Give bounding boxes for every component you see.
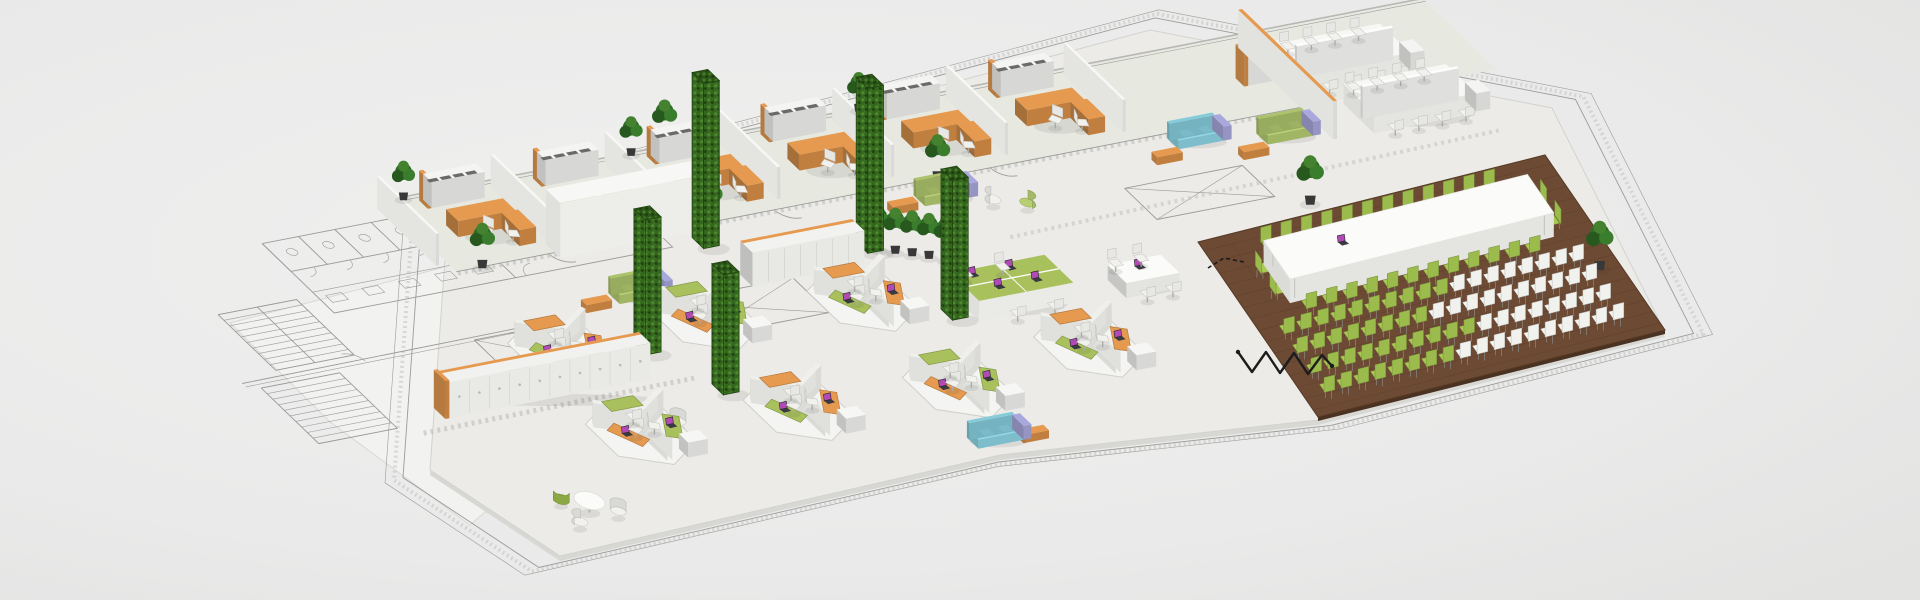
office-floorplan-figure: Isometric office floor plan render	[0, 0, 1920, 600]
isometric-office-floorplan	[0, 0, 1920, 600]
